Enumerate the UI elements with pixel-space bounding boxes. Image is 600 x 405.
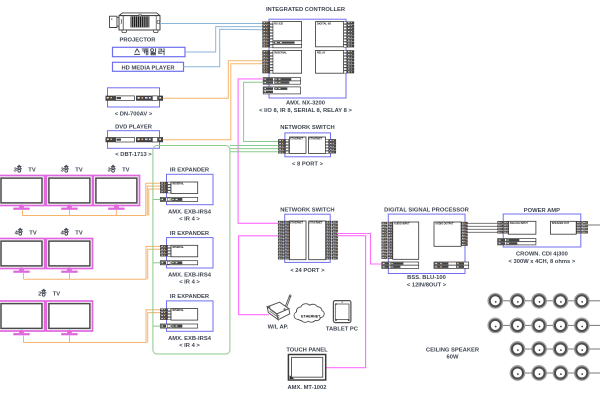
svg-text:CROWN. CDI 4|300: CROWN. CDI 4|300 bbox=[516, 252, 568, 258]
svg-text:< 24 PORT >: < 24 PORT > bbox=[290, 268, 325, 274]
svg-text:BSS. BLU-100: BSS. BLU-100 bbox=[407, 275, 446, 281]
svg-text:W/L AP.: W/L AP. bbox=[268, 325, 289, 331]
svg-text:AMX. EXB-IRS4: AMX. EXB-IRS4 bbox=[168, 209, 212, 215]
svg-text:RELAY: RELAY bbox=[317, 50, 326, 54]
svg-text:TV: TV bbox=[75, 168, 83, 174]
svg-text:AUDIO OUTPUT: AUDIO OUTPUT bbox=[435, 223, 454, 226]
svg-text:ETHERNET: ETHERNET bbox=[309, 137, 322, 140]
svg-text:POWER AMP: POWER AMP bbox=[524, 208, 560, 214]
svg-text:TV: TV bbox=[29, 231, 37, 237]
svg-text:NETWORK SWITCH: NETWORK SWITCH bbox=[280, 125, 334, 131]
svg-text:TV: TV bbox=[53, 292, 61, 298]
svg-text:< DN-700AV >: < DN-700AV > bbox=[115, 112, 153, 118]
svg-text:< 300W x 4CH, 8 ohms >: < 300W x 4CH, 8 ohms > bbox=[509, 259, 576, 265]
svg-text:IR/SERIAL: IR/SERIAL bbox=[274, 50, 287, 54]
svg-text:DIGITAL I/O: DIGITAL I/O bbox=[317, 22, 331, 26]
svg-text:ETHERNET: ETHERNET bbox=[290, 137, 303, 140]
svg-text:60W: 60W bbox=[447, 355, 459, 361]
svg-text:IR EXPANDER: IR EXPANDER bbox=[170, 168, 210, 174]
svg-text:TV: TV bbox=[75, 231, 83, 237]
svg-text:< IR 4 >: < IR 4 > bbox=[179, 280, 200, 286]
svg-text:< 8 PORT >: < 8 PORT > bbox=[292, 161, 324, 167]
svg-text:< 12IN/8OUT >: < 12IN/8OUT > bbox=[407, 283, 447, 289]
svg-text:DVD PLAYER: DVD PLAYER bbox=[115, 124, 153, 130]
svg-text:RS-232: RS-232 bbox=[274, 22, 283, 26]
svg-text:IR/SERIAL: IR/SERIAL bbox=[172, 309, 184, 312]
svg-text:CEILING SPEAKER: CEILING SPEAKER bbox=[426, 347, 480, 353]
svg-text:< IR 4 >: < IR 4 > bbox=[179, 343, 200, 349]
svg-text:ETHERNET: ETHERNET bbox=[301, 314, 321, 318]
svg-text:IR/SERIAL: IR/SERIAL bbox=[172, 183, 184, 186]
svg-text:AUDIO INPUT: AUDIO INPUT bbox=[394, 223, 410, 226]
svg-text:TOUCH PANEL: TOUCH PANEL bbox=[286, 347, 328, 353]
svg-text:AMX. MT-1002: AMX. MT-1002 bbox=[288, 385, 327, 391]
svg-text:< DBT-1713 >: < DBT-1713 > bbox=[115, 152, 152, 158]
svg-text:AMX. NX-3200: AMX. NX-3200 bbox=[286, 101, 325, 107]
svg-text:DIGITAL SIGNAL PROCESSOR: DIGITAL SIGNAL PROCESSOR bbox=[384, 208, 470, 214]
svg-text:TV: TV bbox=[122, 168, 130, 174]
svg-text:IR EXPANDER: IR EXPANDER bbox=[170, 294, 210, 300]
svg-text:PROJECTOR: PROJECTOR bbox=[120, 38, 157, 44]
svg-text:TABLET PC: TABLET PC bbox=[326, 326, 359, 332]
svg-text:< IR 4 >: < IR 4 > bbox=[179, 216, 200, 222]
svg-text:ETHERNET: ETHERNET bbox=[290, 221, 303, 224]
svg-text:TV: TV bbox=[28, 168, 36, 174]
svg-text:< I/O 8, IR 8, SERIAL 8, RELAY: < I/O 8, IR 8, SERIAL 8, RELAY 8 > bbox=[259, 108, 352, 114]
svg-text:AMX. EXB-IRS4: AMX. EXB-IRS4 bbox=[168, 273, 212, 279]
svg-text:INTEGRATED CONTROLLER: INTEGRATED CONTROLLER bbox=[266, 7, 346, 13]
svg-text:SPEAKER OUT: SPEAKER OUT bbox=[552, 222, 570, 225]
svg-text:AMX. EXB-IRS4: AMX. EXB-IRS4 bbox=[168, 336, 212, 342]
svg-text:ETHERNET: ETHERNET bbox=[310, 221, 323, 224]
svg-text:2: 2 bbox=[38, 292, 41, 298]
svg-text:IR/SERIAL: IR/SERIAL bbox=[172, 246, 184, 249]
svg-text:ANALOG INPUT: ANALOG INPUT bbox=[510, 222, 529, 225]
svg-text:NETWORK SWITCH: NETWORK SWITCH bbox=[280, 208, 334, 214]
svg-text:IR EXPANDER: IR EXPANDER bbox=[170, 231, 210, 237]
svg-text:HD MEDIA PLAYER: HD MEDIA PLAYER bbox=[121, 65, 175, 71]
